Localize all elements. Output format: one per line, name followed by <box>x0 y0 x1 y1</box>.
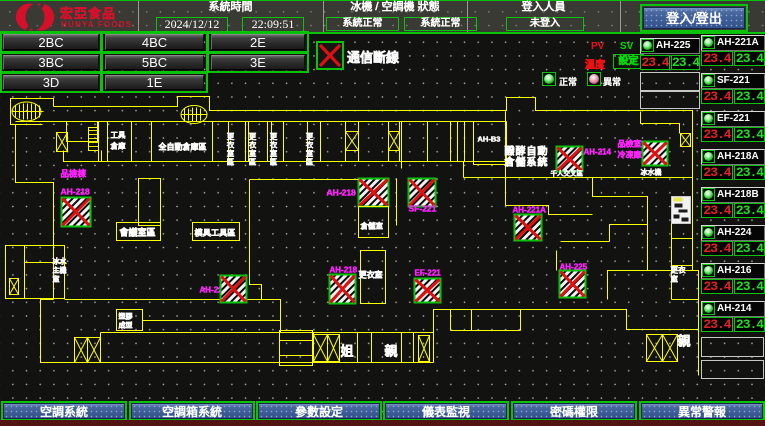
svg-text:AH-214: AH-214 <box>584 148 612 157</box>
svg-text:模具工具區: 模具工具區 <box>195 228 236 238</box>
svg-text:AH-218: AH-218 <box>330 266 358 275</box>
svg-text:冰水機: 冰水機 <box>641 168 662 177</box>
svg-text:會議室區: 會議室區 <box>120 227 156 238</box>
svg-text:千人交叉區: 千人交叉區 <box>551 169 584 178</box>
svg-text:冰水: 冰水 <box>53 257 68 266</box>
svg-text:室: 室 <box>671 274 679 284</box>
svg-text:親: 親 <box>678 334 691 349</box>
svg-text:更衣: 更衣 <box>671 265 686 275</box>
svg-text:品檢室: 品檢室 <box>618 139 642 149</box>
svg-text:成型: 成型 <box>119 321 133 330</box>
svg-text:工具: 工具 <box>111 131 126 140</box>
svg-text:倉庫: 倉庫 <box>110 141 126 151</box>
svg-text:親: 親 <box>385 344 398 359</box>
svg-text:姐: 姐 <box>341 344 354 359</box>
svg-text:AH-218: AH-218 <box>61 187 91 197</box>
svg-text:AH-B3: AH-B3 <box>478 135 501 144</box>
svg-text:醱酵自動: 醱酵自動 <box>505 145 549 158</box>
svg-text:更衣室區: 更衣室區 <box>269 132 278 166</box>
svg-text:塑膠: 塑膠 <box>119 312 133 321</box>
svg-text:冷凍庫: 冷凍庫 <box>618 150 642 160</box>
svg-text:SF-221: SF-221 <box>409 204 437 214</box>
svg-text:更衣室區: 更衣室區 <box>248 132 257 166</box>
svg-text:全自動倉庫區: 全自動倉庫區 <box>158 142 207 152</box>
svg-text:AH-218: AH-218 <box>327 188 357 198</box>
svg-text:室: 室 <box>53 275 60 284</box>
svg-text:倉儲室: 倉儲室 <box>360 221 384 231</box>
svg-text:AH-221A: AH-221A <box>513 206 547 215</box>
svg-text:主機: 主機 <box>53 266 67 275</box>
svg-text:更衣室區: 更衣室區 <box>305 132 314 166</box>
svg-text:更衣室: 更衣室 <box>359 270 383 280</box>
svg-text:倉儲系統: 倉儲系統 <box>504 156 549 169</box>
svg-text:品檢棟: 品檢棟 <box>61 169 87 179</box>
svg-text:EF-221: EF-221 <box>415 269 442 278</box>
svg-text:更衣室區: 更衣室區 <box>226 132 235 166</box>
